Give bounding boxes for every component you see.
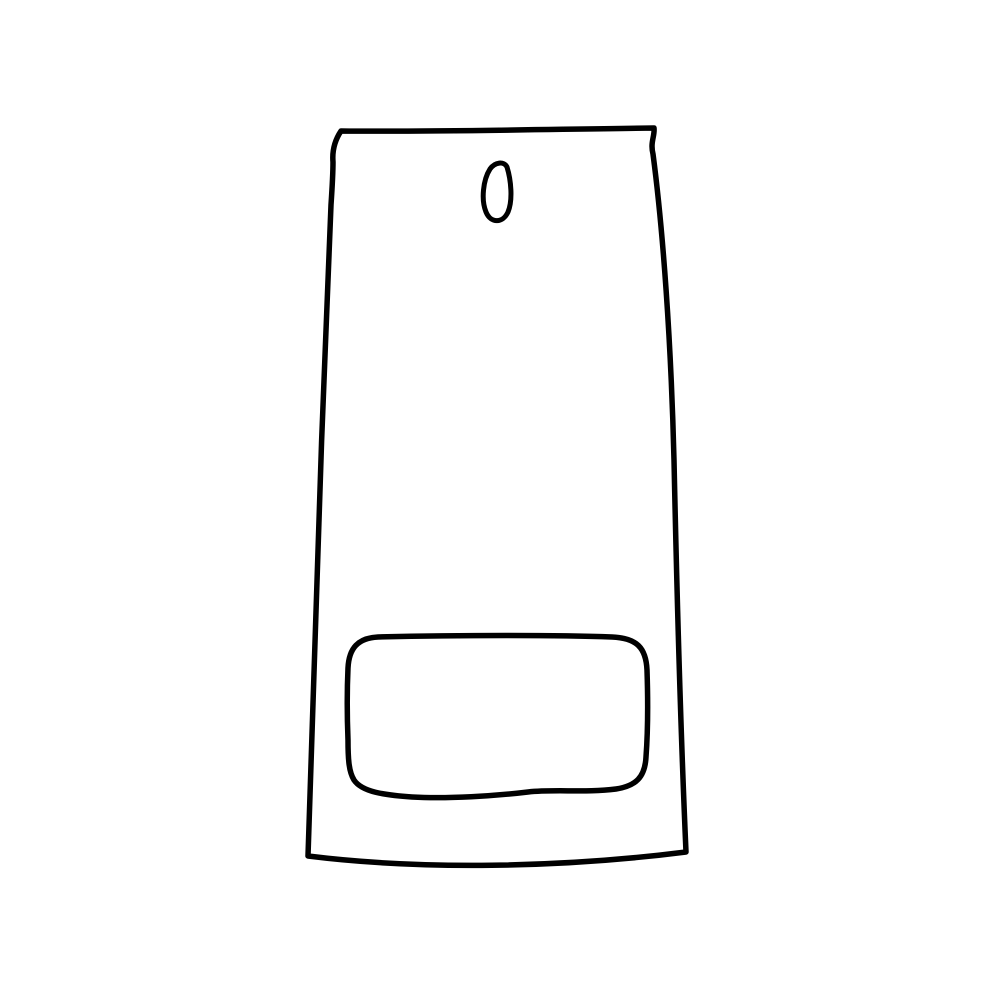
dispenser-line-art: Hand-drawn line art of a wall-mounted di… (0, 0, 1000, 1000)
hanging-hole-shape (483, 163, 511, 221)
front-pocket-shape (347, 636, 647, 798)
body-outline-shape (308, 128, 686, 865)
illustration-canvas: Hand-drawn line art of a wall-mounted di… (0, 0, 1000, 1000)
